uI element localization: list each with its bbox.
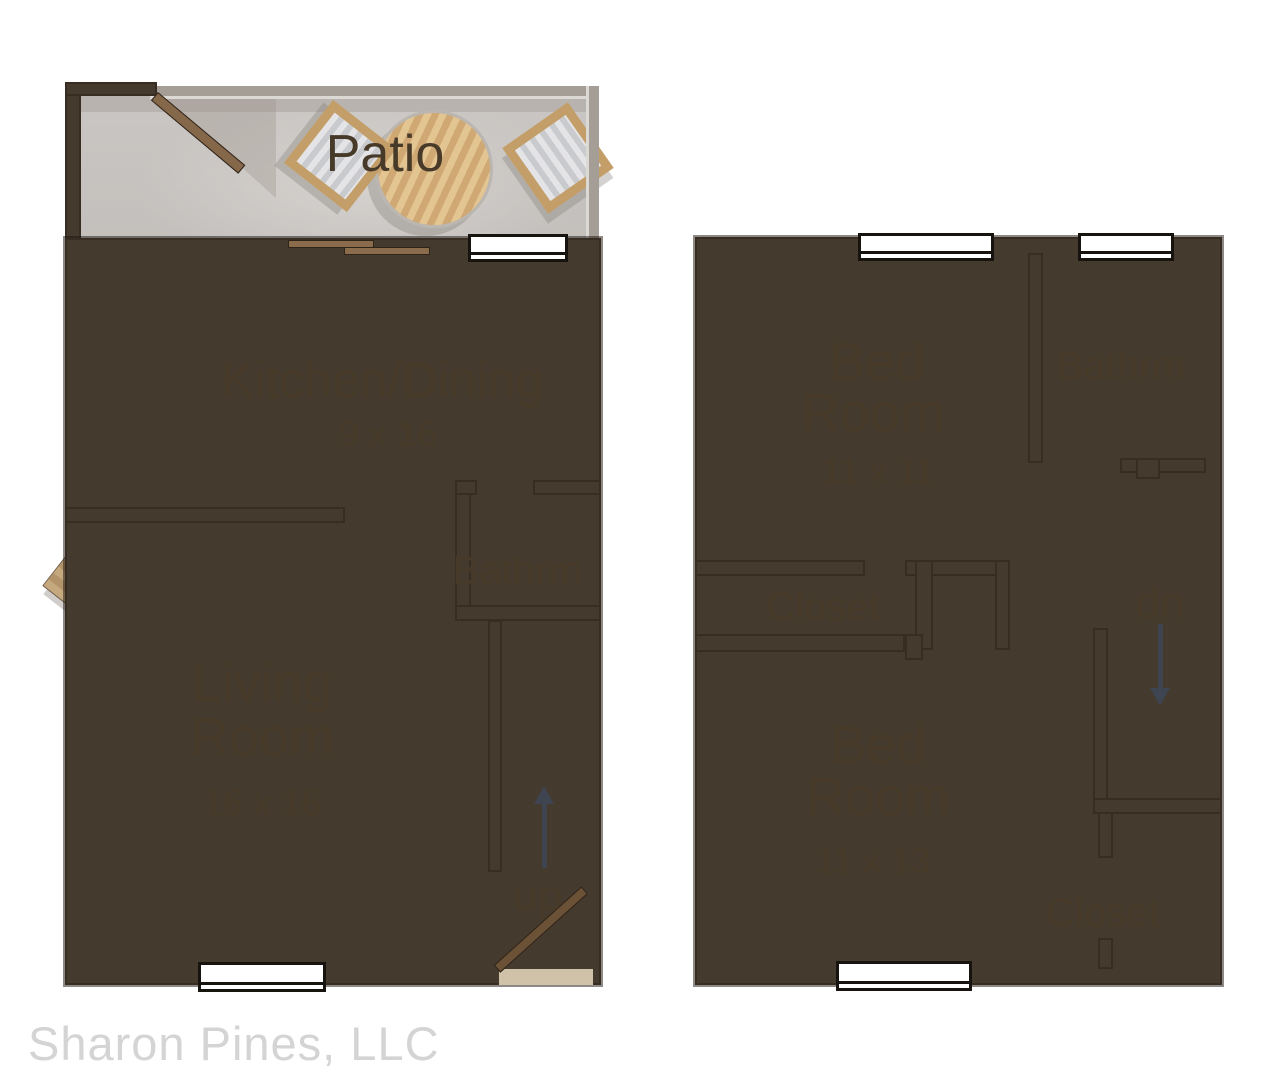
bedroom2-label-line1: Bed xyxy=(830,718,926,772)
living-room-label-line1: Living xyxy=(191,656,332,710)
living-room-label-line2: Room xyxy=(190,710,334,764)
bedroom1-label-line2: Room xyxy=(801,386,945,440)
hall-closet-label: Closet xyxy=(766,587,879,627)
patio-wall-top xyxy=(150,86,596,99)
hall-wall-right-stub xyxy=(995,560,1010,650)
patio-wall-top-left-segment xyxy=(65,82,157,96)
slider-panel xyxy=(344,247,430,255)
patio-wall-right xyxy=(586,86,599,246)
kitchen-window xyxy=(468,234,568,262)
kitchen-dining-label: Kitchen/Dining xyxy=(221,355,543,405)
hall-closet-wall-bottom xyxy=(695,634,905,652)
bedroom1-dimensions: 11 x 11 xyxy=(822,454,935,490)
bedroom1-window xyxy=(858,233,994,261)
bathroom2-wall-left xyxy=(1028,253,1043,463)
bedroom2-window xyxy=(836,961,972,991)
floor-plan: Patio Kitchen/Dining 9 x 16 xyxy=(0,0,1286,1080)
bathroom1-wall-top-left xyxy=(455,480,477,495)
bedroom2-dimensions: 11 x 13 xyxy=(815,843,930,879)
up-label: up xyxy=(514,874,563,918)
bathroom2-wall-stub xyxy=(1136,458,1160,479)
bathroom2-window xyxy=(1078,233,1174,261)
dn-label: dn xyxy=(1136,582,1185,626)
patio-slider-door xyxy=(288,240,430,254)
bathroom1-label: Bathrm xyxy=(453,551,582,591)
patio-label: Patio xyxy=(326,128,445,180)
bathroom2-wall-bottom xyxy=(1120,458,1206,473)
bathroom1-wall-top-right xyxy=(533,480,601,495)
kitchen-dining-dimensions: 9 x 16 xyxy=(339,416,437,452)
dn-arrow-head xyxy=(1150,688,1170,706)
bedroom-closet-label: Closet xyxy=(1046,893,1159,933)
living-room-dimensions: 16 x 16 xyxy=(203,785,321,821)
kitchen-half-wall xyxy=(65,507,345,523)
stairs-up-wall xyxy=(488,620,502,872)
bedroom2-label-line2: Room xyxy=(806,770,950,824)
watermark-text: Sharon Pines, LLC xyxy=(28,1016,440,1071)
bedroom-closet-wall-bottom-stub xyxy=(1098,938,1113,969)
living-room-window xyxy=(198,962,326,992)
hall-closet-wall-bottom-stub xyxy=(905,634,923,660)
bedroom-closet-wall-top-stub xyxy=(1098,812,1113,858)
bathroom1-wall-bottom xyxy=(455,605,601,621)
patio-wall-left xyxy=(65,82,81,242)
stairs-down-wall-left xyxy=(1093,628,1108,812)
bedroom1-label-line1: Bed xyxy=(829,335,925,389)
dn-arrow-shaft xyxy=(1158,624,1163,688)
up-arrow-shaft xyxy=(542,802,547,868)
hall-closet-wall-top-left xyxy=(695,560,865,576)
bathroom2-label: Bathrm xyxy=(1057,346,1186,386)
